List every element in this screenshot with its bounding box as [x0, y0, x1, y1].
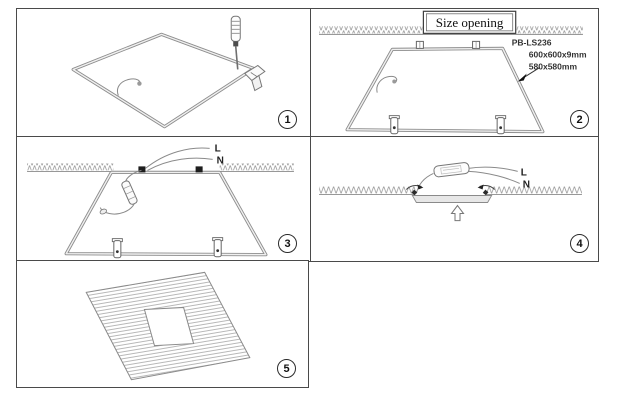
installed-ceiling	[86, 272, 250, 379]
arrow-up-icon	[451, 206, 463, 221]
power-cable	[117, 79, 141, 96]
step5-panel: 5	[16, 260, 309, 388]
step1-panel: 1	[16, 8, 312, 138]
step3-panel: L N	[16, 136, 312, 262]
size-opening-text: Size opening	[436, 15, 504, 30]
step2-drawing: Size opening	[311, 9, 598, 137]
mounting-clip	[196, 166, 203, 172]
step2-panel: Size opening	[310, 8, 599, 138]
driver-box	[99, 170, 141, 215]
step3-drawing: L N	[17, 137, 311, 261]
live-label: L	[521, 167, 527, 178]
step4-panel: L N 4	[310, 136, 599, 262]
live-label: L	[215, 143, 221, 154]
mounting-clip	[245, 65, 265, 90]
panel-frame	[66, 172, 266, 254]
cable-end	[137, 81, 141, 85]
neutral-label: N	[523, 179, 530, 190]
driver-box	[416, 162, 469, 193]
panel-frame	[73, 34, 254, 126]
mounting-clip	[138, 166, 145, 172]
size-opening-label: Size opening	[423, 11, 515, 33]
mounting-clip	[473, 41, 480, 48]
power-cable	[377, 76, 397, 92]
ceiling-hatch	[319, 186, 582, 194]
step4-drawing: L N	[311, 137, 598, 261]
step-badge: 1	[278, 110, 297, 129]
spring-clip	[496, 116, 506, 134]
mains-wires: L N	[145, 143, 223, 170]
panel-edge	[412, 195, 491, 202]
step-badge: 3	[278, 234, 297, 253]
model-number: PB-LS236	[512, 37, 552, 47]
step-badge: 2	[570, 110, 589, 129]
step-badge: 4	[570, 234, 589, 253]
spec-text: PB-LS236 600x600x9mm 580x580mm	[512, 37, 587, 71]
installation-instruction-sheet: 1 Size opening	[0, 0, 625, 413]
panel-size: 600x600x9mm	[529, 49, 587, 59]
spring-clip	[213, 238, 223, 257]
step5-drawing	[17, 261, 308, 387]
neutral-label: N	[217, 155, 224, 166]
step1-drawing	[17, 9, 311, 137]
step-badge: 5	[277, 359, 296, 378]
spring-clip	[112, 239, 122, 258]
mounting-clip	[416, 41, 423, 48]
spring-clip	[389, 116, 399, 134]
